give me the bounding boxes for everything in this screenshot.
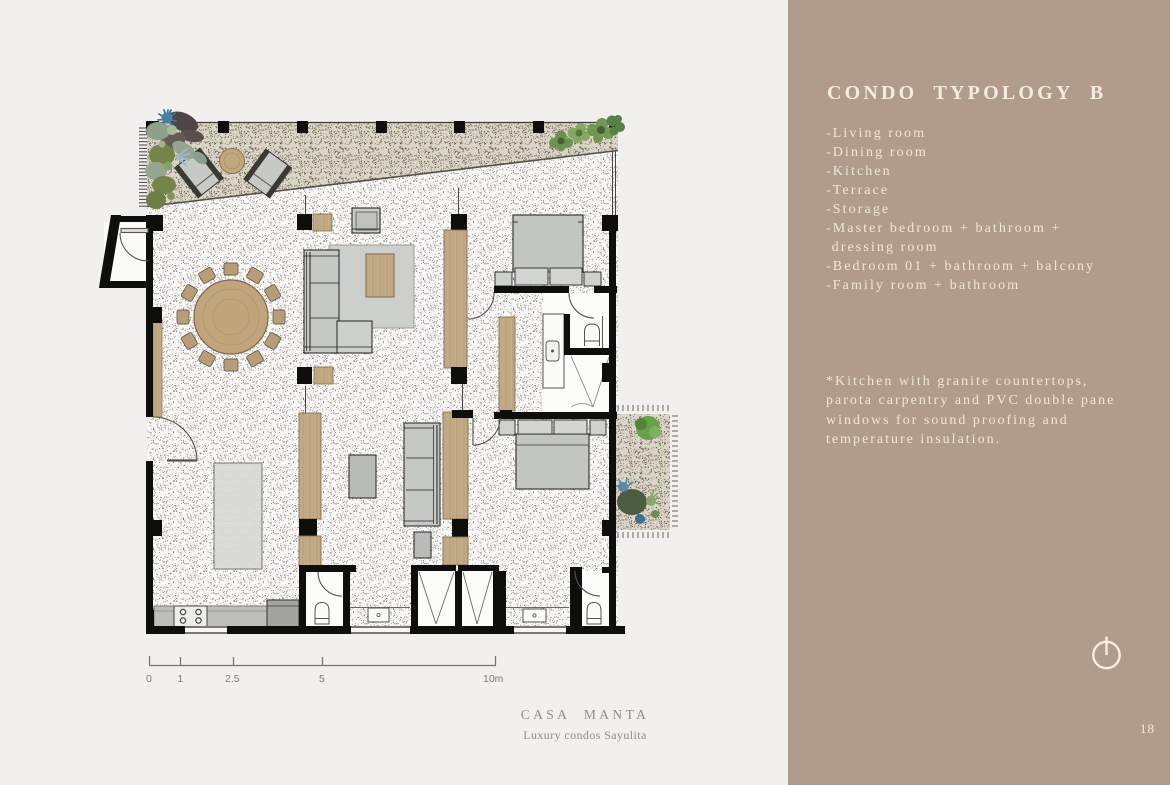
svg-text:1: 1 (178, 673, 184, 685)
svg-text:10m: 10m (483, 673, 504, 685)
svg-text:2.5: 2.5 (225, 673, 240, 685)
svg-text:5: 5 (319, 673, 325, 685)
svg-text:0: 0 (146, 673, 152, 685)
